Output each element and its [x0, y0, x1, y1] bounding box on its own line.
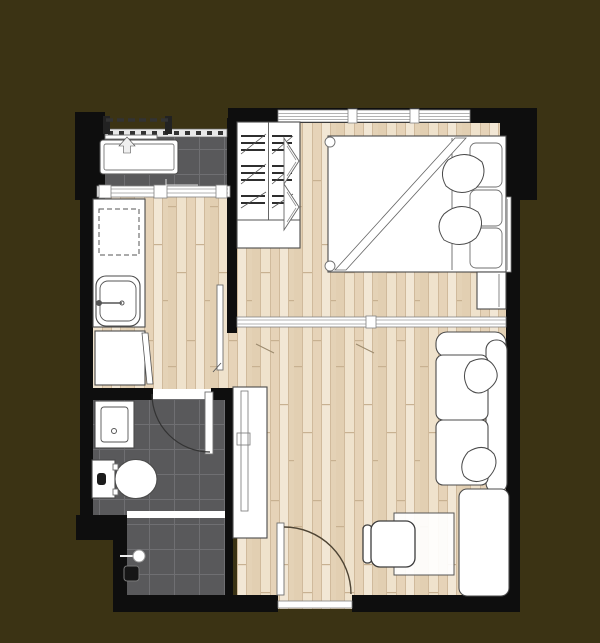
kitchen [93, 199, 153, 385]
side-cabinet [459, 489, 509, 596]
wardrobe [237, 122, 300, 248]
window-post [154, 185, 167, 198]
bathroom-door-leaf [205, 392, 213, 454]
chair-seat [371, 521, 415, 567]
bathroom-door-threshold [153, 389, 211, 399]
entrance-door-leaf [277, 523, 284, 595]
balcony-shelf [105, 135, 157, 139]
bottom-wall-shower [113, 595, 235, 612]
desk-area [363, 513, 454, 575]
toilet-bowl [115, 460, 157, 499]
nightstand [477, 272, 506, 309]
partition-handle [366, 316, 376, 328]
throw-pillow [442, 154, 484, 192]
window-post [99, 185, 111, 198]
hall-sliding-door [217, 285, 223, 370]
toilet-hinge [113, 489, 118, 495]
bed-corner-bump [325, 261, 335, 271]
bathroom-top-wall-left [93, 388, 153, 400]
window-post [216, 185, 227, 198]
window-mullion [348, 109, 357, 123]
floorplan-drawing [0, 0, 600, 643]
bottom-wall-left [228, 595, 278, 612]
window-mullion [410, 109, 419, 123]
tv-console-body [233, 387, 267, 538]
left-wall-bathroom [80, 388, 93, 520]
toilet-hinge [113, 464, 118, 470]
bottom-wall-right [352, 595, 520, 612]
floorplan-page: A2 28.5 sq.m. [0, 0, 600, 643]
shower-drain [124, 566, 139, 581]
tv-console [233, 387, 267, 538]
hall-bedroom-wall [227, 118, 237, 333]
laundry-counter [100, 140, 178, 174]
shower-head [133, 550, 145, 562]
shower-partition [127, 511, 225, 518]
bed-corner-bump [325, 137, 335, 147]
flush-button [97, 473, 106, 485]
left-wall-kitchen [80, 192, 93, 392]
entrance-sill [278, 601, 352, 608]
refrigerator [95, 331, 145, 385]
bathroom-living-wall [225, 388, 233, 612]
bedroom-window [278, 110, 470, 122]
